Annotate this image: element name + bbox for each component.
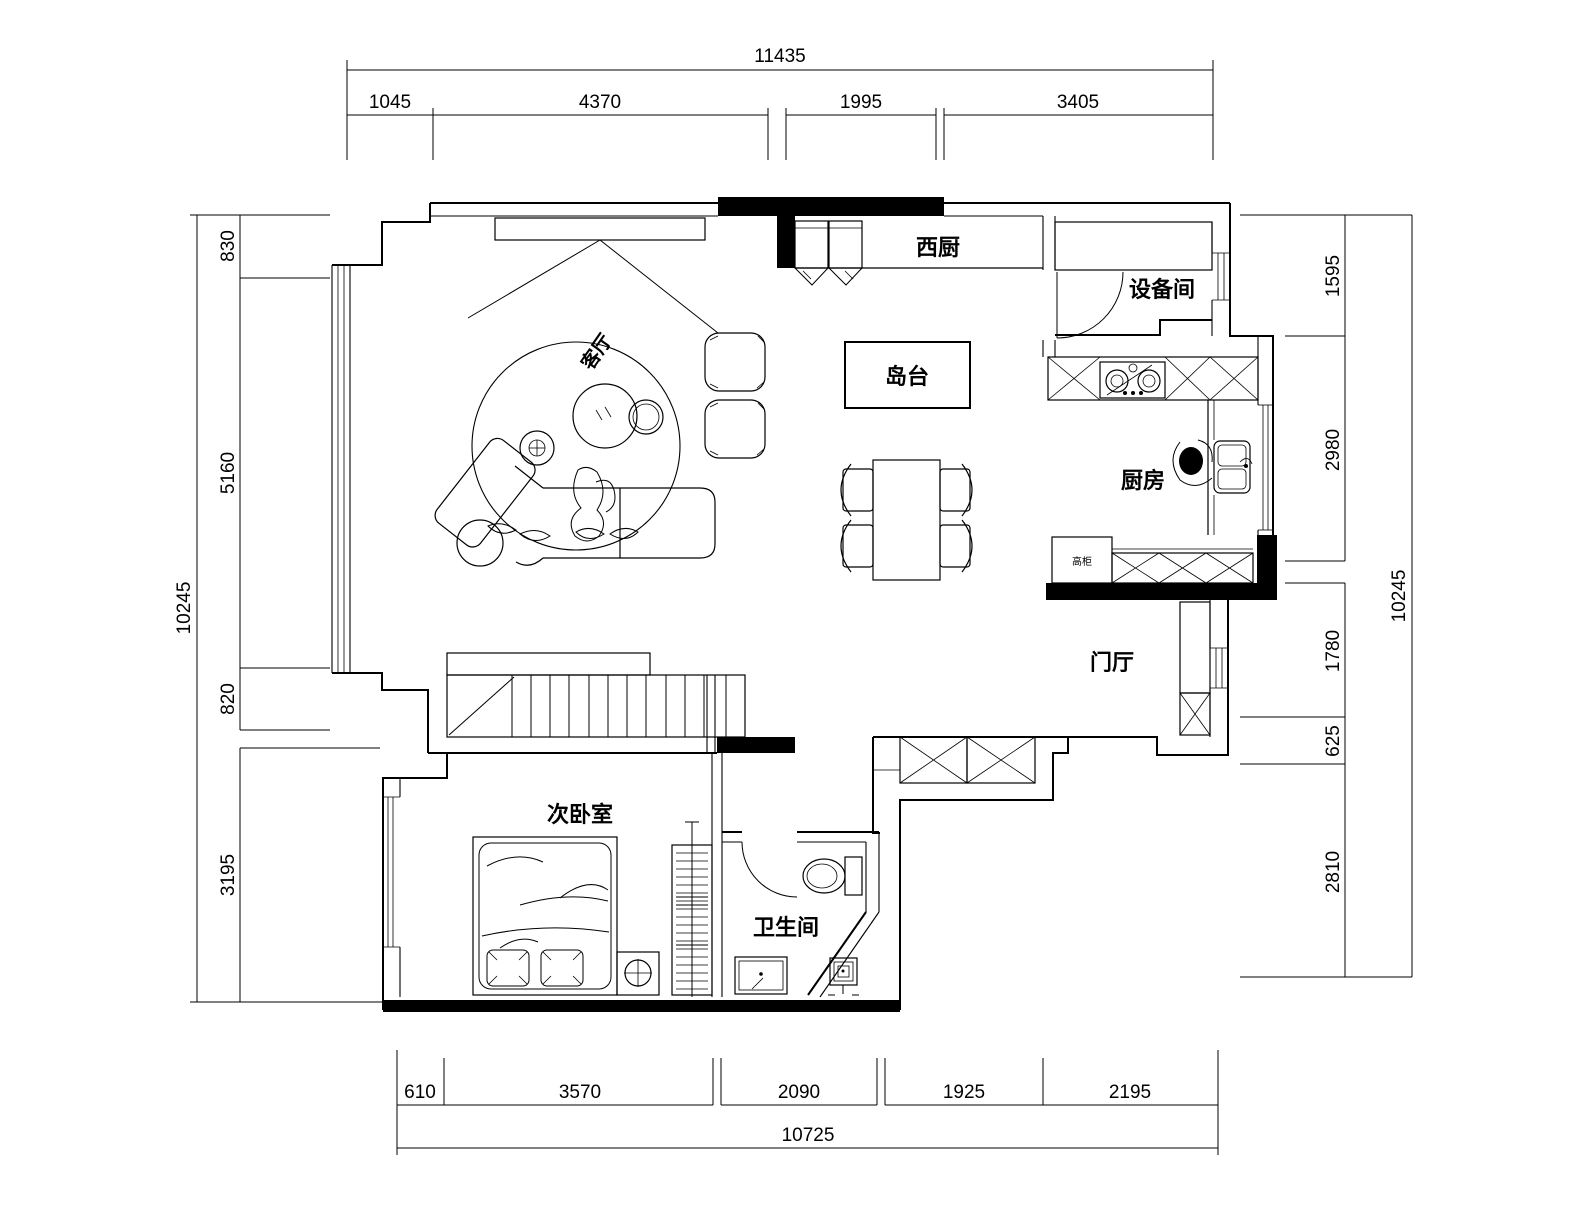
label-tall-cabinet: 高柜 (1072, 555, 1092, 568)
dim-left-total: 10245 (174, 582, 195, 635)
dim-right-seg-0: 1595 (1323, 255, 1344, 297)
solid-wall-stairs (717, 737, 795, 753)
dimension-top: 11435 1045 4370 1995 3405 (347, 46, 1213, 160)
floor-plan-drawing: 11435 1045 4370 1995 3405 10245 830 5160… (0, 0, 1576, 1218)
ladder-radiator (672, 822, 712, 997)
label-kitchen: 厨房 (1121, 468, 1165, 494)
dining-table (873, 460, 940, 580)
label-island: 岛台 (885, 364, 929, 390)
bed (473, 837, 617, 995)
dim-bottom-seg-2: 2090 (778, 1082, 820, 1103)
floor-lamp (520, 431, 554, 465)
dim-top-seg-1: 4370 (579, 92, 621, 113)
label-west-kitchen: 西厨 (916, 236, 960, 261)
door-arc-equipment (1057, 272, 1123, 338)
dining-chair (940, 520, 972, 572)
dim-top-seg-0: 1045 (369, 92, 411, 113)
cushion-chair (705, 400, 765, 458)
dimension-left: 10245 830 5160 820 3195 (174, 215, 383, 1002)
lounge-chair (431, 434, 539, 551)
hall-closets (873, 737, 1035, 783)
toilet (803, 857, 862, 895)
west-kitchen-area: 西厨 (795, 221, 1043, 285)
dim-bottom-seg-0: 610 (404, 1082, 436, 1103)
tv-cabinet (495, 218, 705, 240)
stairs (447, 653, 745, 753)
vanity-sink (735, 957, 787, 994)
dim-bottom-total: 10725 (782, 1125, 835, 1146)
stove (1100, 362, 1165, 398)
label-bathroom: 卫生间 (753, 916, 819, 941)
window-foyer (1210, 648, 1228, 688)
dim-right-total: 10245 (1389, 570, 1410, 623)
pillow (487, 950, 529, 986)
nightstand (617, 952, 659, 995)
dining-set (841, 460, 972, 580)
bedroom-area: 次卧室 (473, 802, 712, 997)
solid-wall-bottom (383, 1000, 900, 1012)
living-room-area: 客厅 (431, 218, 765, 566)
foyer-cabinet (1180, 602, 1210, 693)
coffee-table (573, 384, 663, 448)
dim-right-seg-1: 2980 (1323, 429, 1344, 471)
tall-cabinet: 高柜 (1052, 537, 1112, 583)
floor-plan-page: 11435 1045 4370 1995 3405 10245 830 5160… (0, 0, 1576, 1218)
label-equipment-room: 设备间 (1129, 277, 1195, 303)
walls (332, 197, 1277, 1012)
dim-right-seg-3: 625 (1323, 725, 1344, 757)
dim-bottom-seg-4: 2195 (1109, 1082, 1151, 1103)
dim-left-seg-0: 830 (218, 230, 239, 262)
seated-figure (571, 467, 615, 541)
dim-top-seg-3: 3405 (1057, 92, 1099, 113)
cushion-chair (705, 333, 765, 391)
window-kitchen (1258, 405, 1273, 530)
window-living-room-bay (332, 265, 350, 673)
dimension-bottom: 610 3570 2090 1925 2195 10725 (397, 1050, 1218, 1155)
kitchen-area: 高柜 厨房 (1048, 357, 1258, 583)
dim-bottom-seg-1: 3570 (559, 1082, 601, 1103)
equipment-cabinet (1055, 222, 1212, 270)
foyer-area: 门厅 (1090, 602, 1210, 735)
label-foyer: 门厅 (1090, 650, 1134, 676)
dim-top-seg-2: 1995 (840, 92, 882, 113)
dim-top-total: 11435 (754, 46, 805, 67)
dim-left-seg-3: 3195 (218, 854, 239, 896)
stairs-closet (447, 653, 650, 675)
dining-chair (841, 520, 873, 572)
carpet (472, 342, 680, 550)
person-figure (1173, 440, 1212, 486)
window-equipment-room (1212, 253, 1230, 300)
dining-chair (841, 464, 873, 516)
plant-decor (488, 524, 638, 541)
sofa (515, 466, 715, 565)
island-counter: 岛台 (845, 342, 970, 408)
dim-bottom-seg-3: 1925 (943, 1082, 985, 1103)
bathroom-area: 卫生间 (722, 832, 879, 997)
label-second-bedroom: 次卧室 (547, 802, 613, 828)
solid-wall-top (718, 197, 944, 216)
stairs-break-line (449, 677, 514, 735)
dim-right-seg-4: 2810 (1323, 851, 1344, 893)
label-living-room: 客厅 (576, 330, 617, 374)
window-bedroom (383, 778, 400, 997)
pillow (541, 950, 583, 986)
dining-chair (940, 464, 972, 516)
door-arc-bathroom (742, 842, 797, 897)
dim-right-seg-2: 1780 (1323, 630, 1344, 672)
dim-left-seg-1: 5160 (218, 452, 239, 494)
sink (1214, 441, 1252, 493)
dim-left-seg-2: 820 (218, 683, 239, 715)
